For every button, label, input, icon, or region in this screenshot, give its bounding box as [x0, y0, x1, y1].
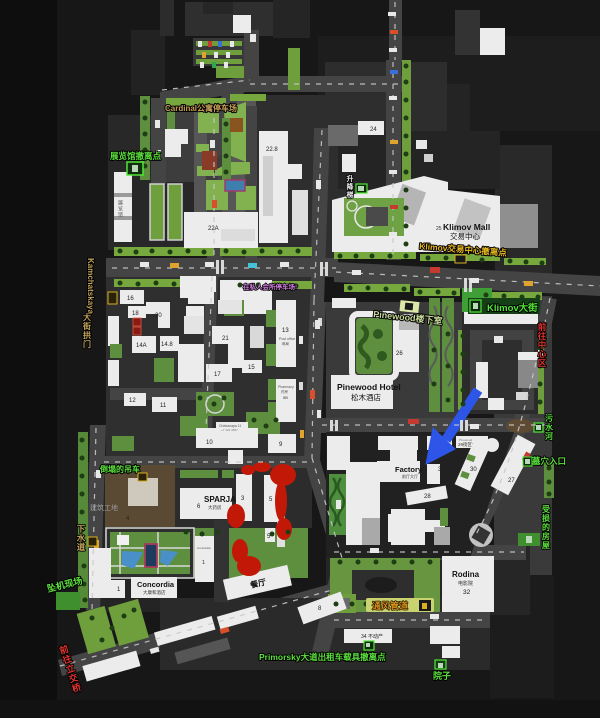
- svg-text:水: 水: [544, 422, 554, 432]
- svg-text:门: 门: [83, 339, 91, 349]
- svg-text:大药房: 大药房: [208, 504, 222, 511]
- svg-text:Pharmacy: Pharmacy: [278, 385, 294, 389]
- svg-text:Pinewood Hotel: Pinewood Hotel: [337, 382, 401, 392]
- svg-text:大康和酒店: 大康和酒店: [143, 589, 166, 596]
- svg-text:墓穴入口: 墓穴入口: [531, 456, 566, 466]
- svg-text:25: 25: [436, 226, 442, 232]
- svg-text:Primorsky大道出租车载具撤离点: Primorsky大道出租车载具撤离点: [259, 652, 386, 662]
- svg-text:27: 27: [508, 478, 515, 484]
- svg-text:15: 15: [248, 365, 255, 371]
- svg-text:22A: 22A: [208, 226, 219, 232]
- svg-text:34 不动产: 34 不动产: [361, 633, 383, 640]
- svg-text:11: 11: [160, 403, 167, 409]
- svg-text:损: 损: [542, 513, 550, 523]
- svg-text:屋: 屋: [542, 540, 550, 550]
- svg-text:Klimov大街: Klimov大街: [487, 302, 538, 314]
- svg-text:24: 24: [370, 127, 377, 133]
- svg-text:18: 18: [132, 311, 139, 317]
- svg-text:26: 26: [396, 351, 403, 357]
- svg-text:的: 的: [542, 522, 550, 532]
- svg-text:房: 房: [542, 531, 550, 541]
- svg-text:前厅大厅: 前厅大厅: [402, 473, 418, 479]
- svg-text:拱: 拱: [83, 330, 91, 340]
- svg-text:Factory: Factory: [395, 465, 423, 474]
- svg-text:药房: 药房: [281, 389, 289, 394]
- svg-text:受: 受: [542, 504, 550, 514]
- svg-text:院子: 院子: [433, 670, 451, 681]
- svg-text:5B: 5B: [283, 395, 288, 400]
- svg-text:邮局: 邮局: [282, 341, 290, 346]
- svg-text:20: 20: [155, 313, 162, 319]
- svg-text:10: 10: [206, 440, 213, 446]
- svg-text:在私人会所停车场!: 在私人会所停车场!: [243, 282, 297, 291]
- svg-text:SPARJA: SPARJA: [204, 495, 236, 504]
- svg-text:河: 河: [545, 431, 553, 441]
- svg-text:梯: 梯: [347, 190, 354, 199]
- svg-text:22.8: 22.8: [266, 147, 278, 153]
- svg-text:区: 区: [538, 358, 547, 368]
- svg-text:Rodina: Rodina: [452, 570, 480, 579]
- svg-text:21: 21: [222, 336, 229, 342]
- svg-text:倒塌的吊车: 倒塌的吊车: [99, 464, 140, 474]
- svg-text:1: 1: [202, 560, 205, 566]
- svg-text:交易中心: 交易中心: [450, 231, 480, 241]
- svg-text:31: 31: [438, 467, 445, 473]
- svg-text:16: 16: [127, 296, 134, 302]
- svg-text:Kamchatskaya: Kamchatskaya: [86, 258, 95, 315]
- svg-text:展览馆: 展览馆: [117, 200, 123, 218]
- svg-text:降: 降: [347, 182, 355, 191]
- svg-text:建筑工地: 建筑工地: [90, 503, 118, 512]
- svg-text:通风管道: 通风管道: [372, 600, 408, 611]
- svg-text:Concordia: Concordia: [137, 580, 175, 589]
- svg-text:32: 32: [463, 589, 471, 596]
- svg-text:道: 道: [77, 542, 86, 552]
- svg-text:展览馆撤离点: 展览馆撤离点: [109, 151, 162, 161]
- svg-text:17: 17: [214, 372, 221, 378]
- svg-text:14A: 14A: [136, 343, 147, 349]
- svg-text:电影院: 电影院: [458, 580, 473, 587]
- svg-text:大: 大: [83, 312, 91, 322]
- svg-text:松木酒店: 松木酒店: [351, 392, 381, 402]
- svg-text:30: 30: [470, 467, 477, 473]
- svg-text:13: 13: [282, 328, 289, 334]
- svg-text:街: 街: [82, 321, 91, 331]
- svg-text:升: 升: [347, 174, 354, 183]
- svg-text:28: 28: [424, 494, 431, 500]
- svg-text:Klimov Mall: Klimov Mall: [443, 222, 490, 232]
- svg-text:Cardinal公寓停车场: Cardinal公寓停车场: [165, 103, 237, 113]
- svg-text:Concordia: Concordia: [197, 546, 211, 550]
- svg-text:+7 123 4567: +7 123 4567: [221, 428, 238, 432]
- svg-text:14.8: 14.8: [161, 342, 173, 348]
- svg-text:Post office: Post office: [279, 337, 295, 341]
- svg-text:12: 12: [129, 398, 136, 404]
- svg-text:污: 污: [545, 413, 553, 423]
